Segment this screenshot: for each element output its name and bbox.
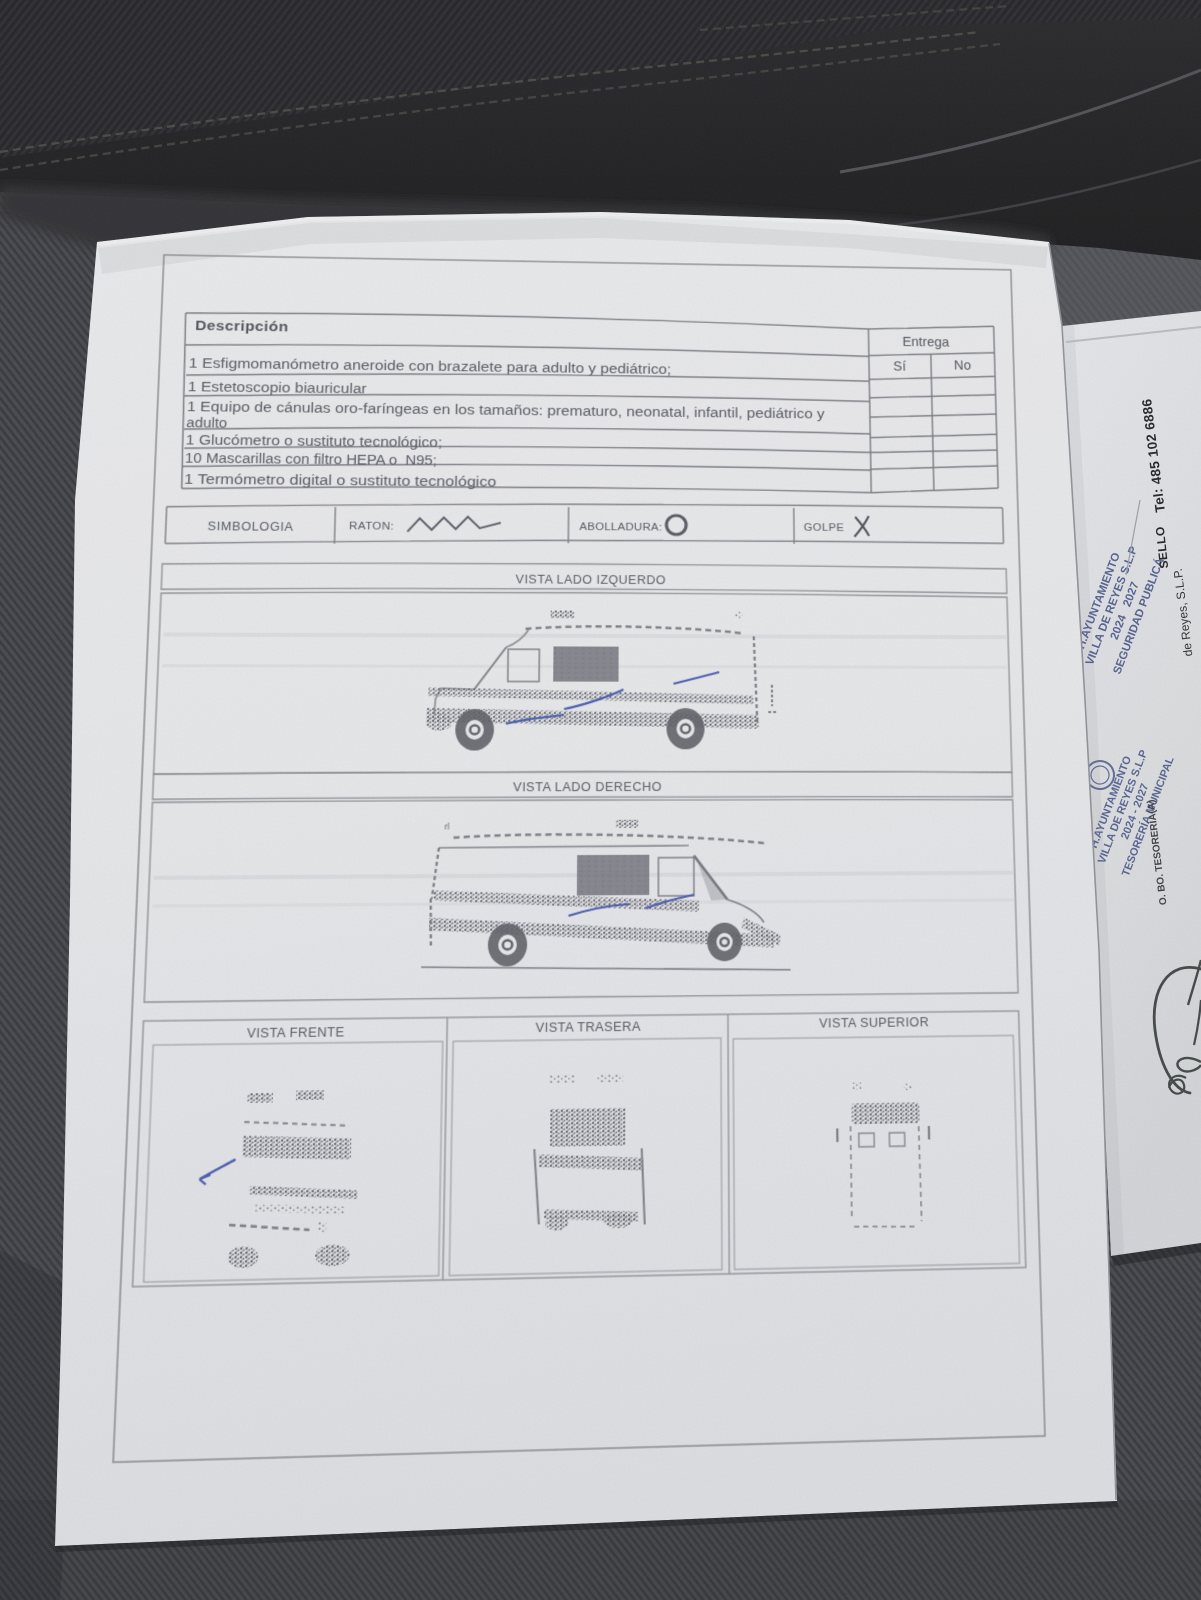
- svg-text:1 Estetoscopio biauricular: 1 Estetoscopio biauricular: [187, 379, 367, 397]
- svg-text:GOLPE: GOLPE: [804, 522, 845, 534]
- svg-text:ABOLLADURA:: ABOLLADURA:: [579, 521, 662, 534]
- svg-text:rl: rl: [444, 821, 449, 832]
- svg-text:No: No: [954, 358, 971, 373]
- svg-text:VISTA SUPERIOR: VISTA SUPERIOR: [819, 1015, 929, 1031]
- svg-text:Sí: Sí: [893, 359, 906, 374]
- svg-text:Entrega: Entrega: [902, 335, 949, 350]
- svg-text:1 Equipo de cánulas oro-faríng: 1 Equipo de cánulas oro-faríngeas en los…: [187, 399, 826, 422]
- svg-text:VISTA LADO DERECHO: VISTA LADO DERECHO: [513, 780, 662, 795]
- svg-text:SIMBOLOGIA: SIMBOLOGIA: [207, 519, 293, 534]
- svg-text:VISTA TRASERA: VISTA TRASERA: [536, 1019, 641, 1035]
- svg-text:adulto: adulto: [186, 415, 228, 431]
- svg-text:VISTA LADO IZQUERDO: VISTA LADO IZQUERDO: [516, 572, 666, 587]
- svg-text:10 Mascarillas con filtro HEPA: 10 Mascarillas con filtro HEPA o N95;: [185, 451, 437, 469]
- svg-text:1 Glucómetro o sustituto tecno: 1 Glucómetro o sustituto tecnológico;: [185, 432, 442, 451]
- svg-text:VISTA FRENTE: VISTA FRENTE: [247, 1024, 345, 1040]
- svg-text:Descripción: Descripción: [195, 318, 289, 335]
- svg-text:1 Termómetro digital o sustitu: 1 Termómetro digital o sustituto tecnoló…: [184, 472, 497, 491]
- svg-text:RATON:: RATON:: [349, 520, 394, 532]
